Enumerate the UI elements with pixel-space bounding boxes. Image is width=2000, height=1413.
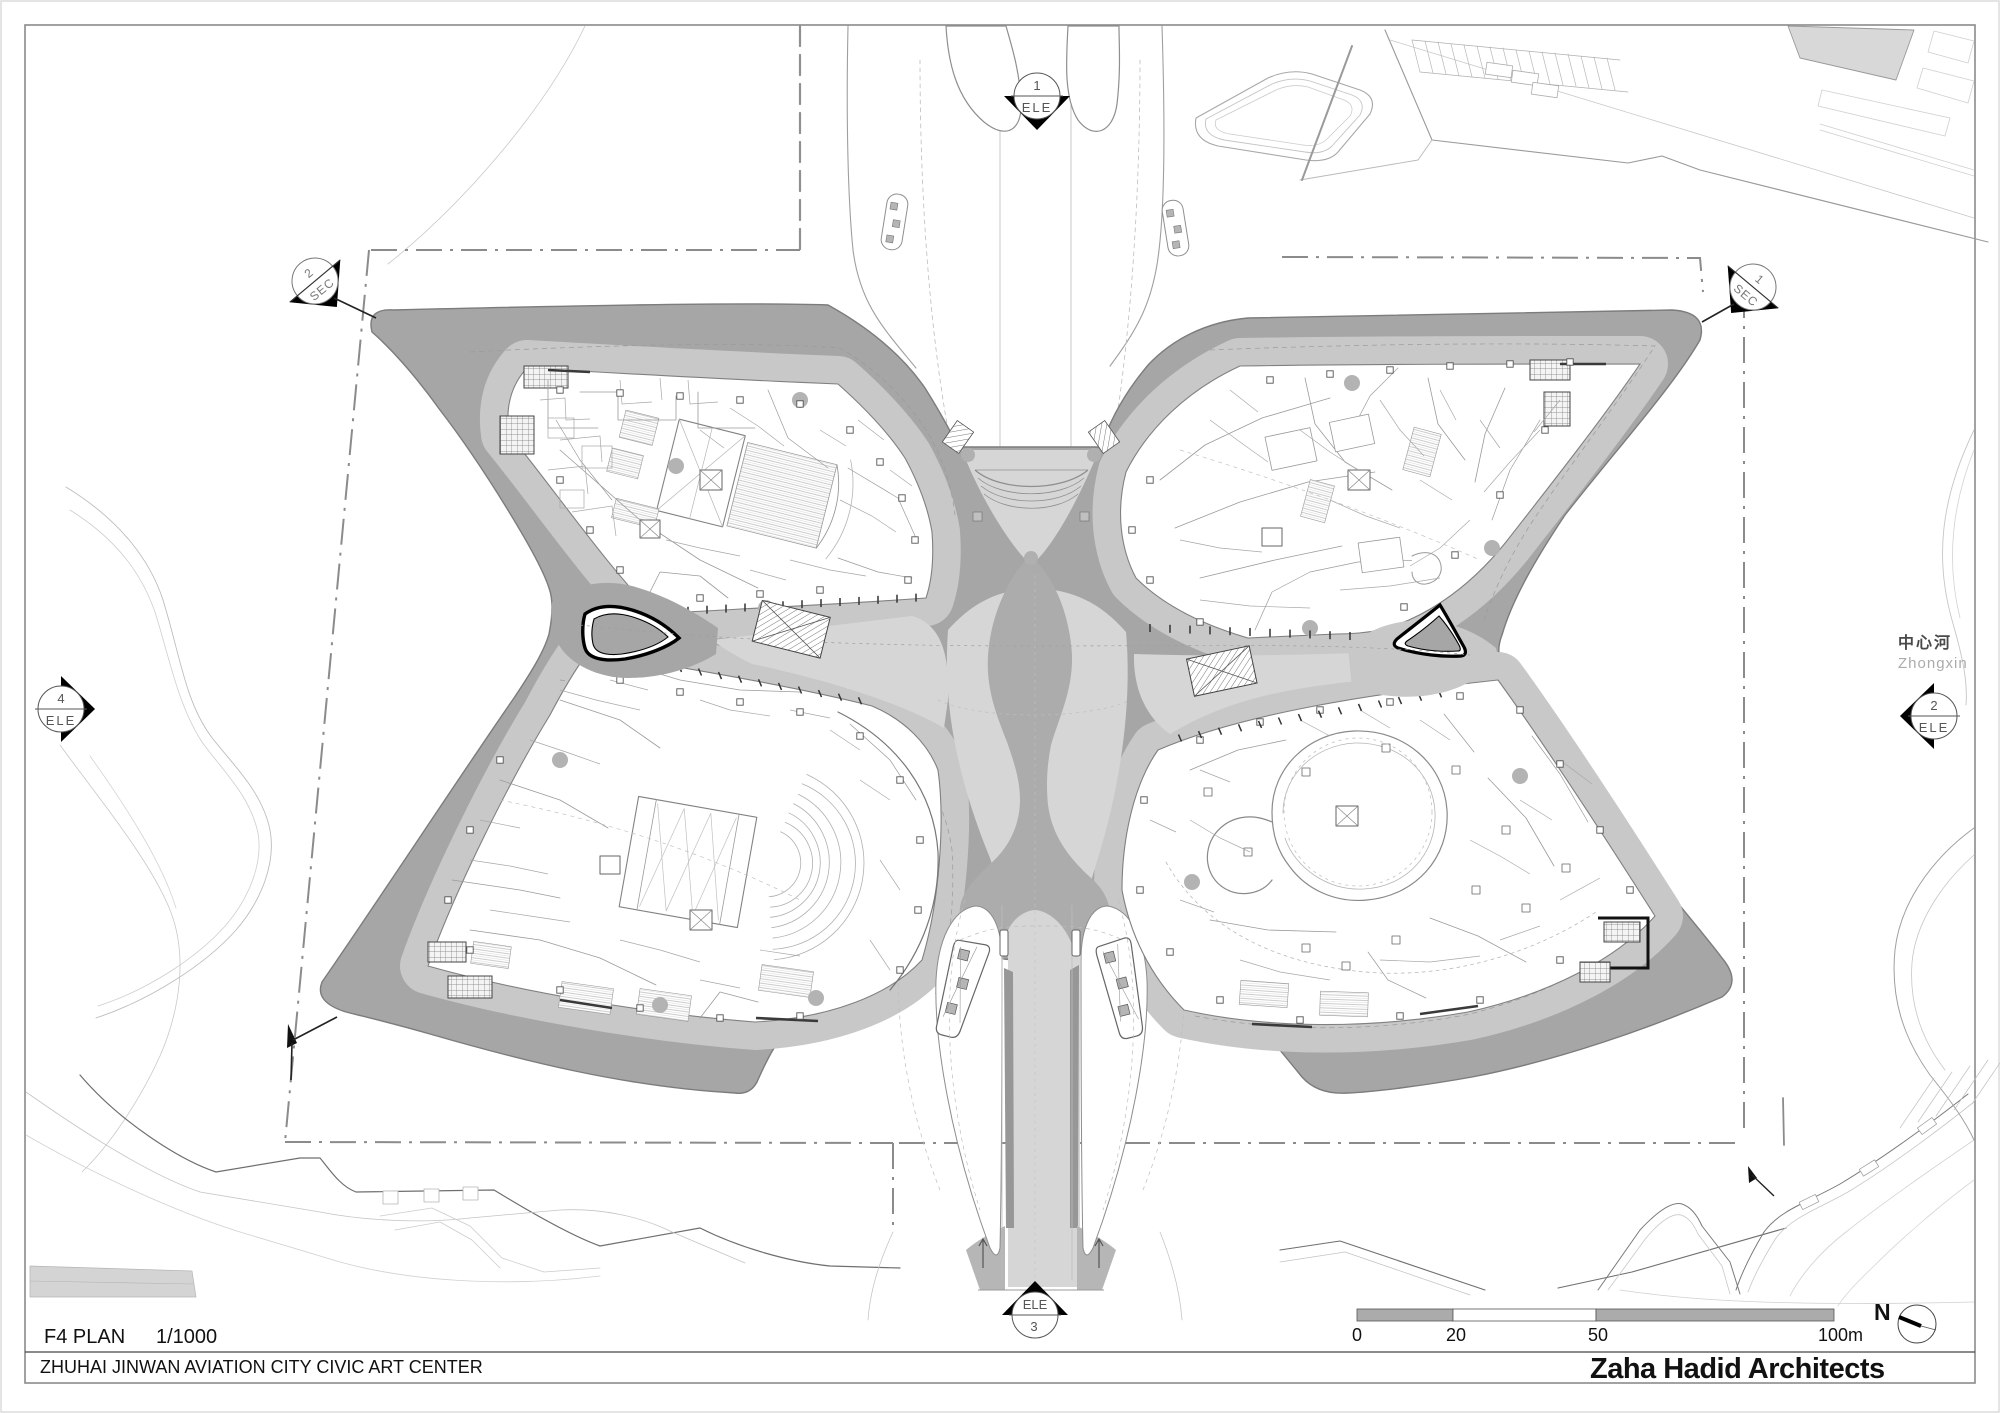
svg-text:ELE: ELE bbox=[1022, 100, 1053, 115]
svg-text:ZHUHAI JINWAN AVIATION CITY CI: ZHUHAI JINWAN AVIATION CITY CIVIC ART CE… bbox=[40, 1357, 483, 1377]
svg-text:ELE: ELE bbox=[46, 713, 77, 728]
svg-text:100m: 100m bbox=[1818, 1325, 1863, 1345]
svg-text:中心河: 中心河 bbox=[1898, 633, 1952, 652]
svg-text:0: 0 bbox=[1352, 1325, 1362, 1345]
svg-text:N: N bbox=[1874, 1299, 1891, 1325]
svg-text:3: 3 bbox=[1030, 1319, 1039, 1334]
svg-text:50: 50 bbox=[1588, 1325, 1608, 1345]
svg-text:4: 4 bbox=[57, 691, 64, 706]
svg-text:1: 1 bbox=[1033, 78, 1040, 93]
svg-text:1/1000: 1/1000 bbox=[156, 1326, 217, 1348]
svg-text:Zaha Hadid Architects: Zaha Hadid Architects bbox=[1590, 1353, 1885, 1385]
svg-text:20: 20 bbox=[1446, 1325, 1466, 1345]
svg-text:2: 2 bbox=[1930, 698, 1937, 713]
svg-text:ELE: ELE bbox=[1919, 720, 1950, 735]
svg-text:ELE: ELE bbox=[1023, 1297, 1048, 1312]
svg-text:Zhongxin: Zhongxin bbox=[1898, 655, 1968, 672]
svg-text:F4 PLAN: F4 PLAN bbox=[44, 1326, 125, 1348]
